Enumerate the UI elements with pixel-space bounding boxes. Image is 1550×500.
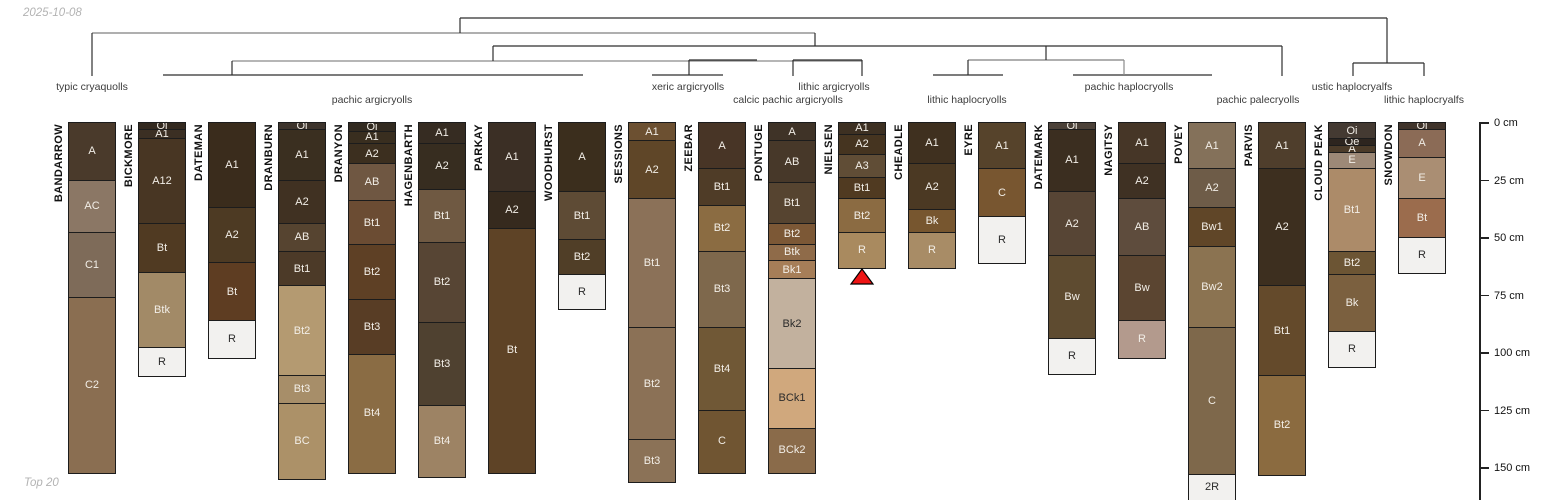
depth-axis-tick	[1479, 295, 1489, 297]
depth-axis-tick-label: 150 cm	[1494, 462, 1530, 474]
depth-axis-tick-label: 125 cm	[1494, 405, 1530, 417]
depth-axis-tick	[1479, 237, 1489, 239]
depth-axis-tick-label: 100 cm	[1494, 347, 1530, 359]
depth-axis-tick-label: 50 cm	[1494, 232, 1524, 244]
soil-profile-dendrogram-plot: 2025-10-08 typic cryaquollspachic argicr…	[0, 0, 1550, 500]
depth-axis-tick	[1479, 180, 1489, 182]
depth-axis-tick	[1479, 410, 1489, 412]
depth-axis-line	[1479, 122, 1481, 500]
depth-axis-tick	[1479, 122, 1489, 124]
depth-axis-tick-label: 75 cm	[1494, 290, 1524, 302]
marker-layer	[0, 0, 1550, 500]
depth-axis-tick	[1479, 352, 1489, 354]
flag-marker-triangle	[851, 269, 873, 284]
depth-axis-tick-label: 25 cm	[1494, 175, 1524, 187]
plot-caption: Top 20	[24, 477, 59, 489]
depth-axis-tick-label: 0 cm	[1494, 117, 1518, 129]
depth-axis-tick	[1479, 467, 1489, 469]
